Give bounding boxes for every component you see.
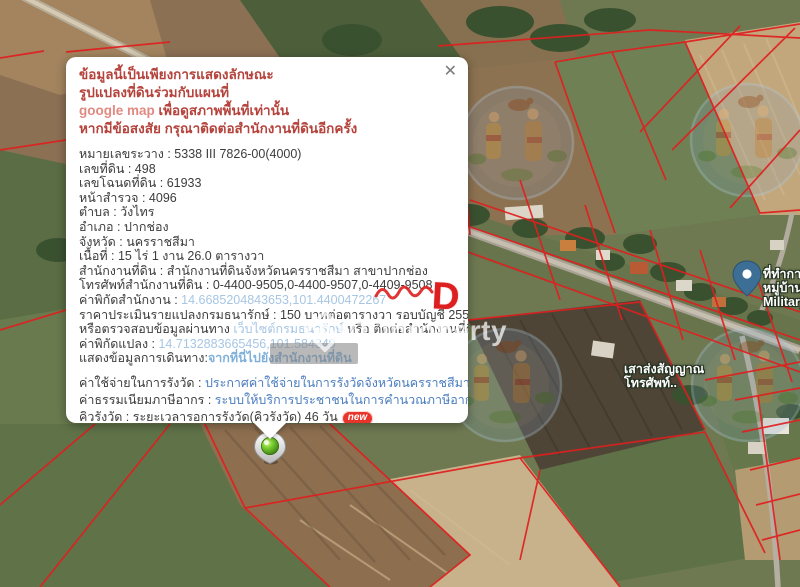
popup-block-gap: [79, 138, 456, 147]
popup-text: google map: [79, 103, 159, 118]
popup-text: ข้อมูลนี้เป็นเพียงการแสดงลักษณะ: [79, 67, 274, 82]
popup-link[interactable]: 14.6685204843653,101.4400472267: [181, 293, 386, 307]
popup-text: ค่าธรรมเนียมภาษีอากร :: [79, 393, 215, 407]
parcel-info-window: ✕ ข้อมูลนี้เป็นเพียงการแสดงลักษณะรูปแปลง…: [66, 57, 468, 423]
popup-text: อำเภอ : ปากช่อง: [79, 220, 169, 234]
parcel-info-content: ข้อมูลนี้เป็นเพียงการแสดงลักษณะรูปแปลงที…: [79, 66, 456, 423]
popup-link[interactable]: ระบบให้บริการประชาชนในการคำนวณภาษีอากร: [215, 393, 468, 407]
popup-text: เพื่อดูสภาพพื้นที่เท่านั้น: [159, 103, 290, 118]
popup-text: จังหวัด : นครราชสีมา: [79, 235, 195, 249]
popup-line: เนื้อที่ : 15 ไร่ 1 งาน 26.0 ตารางวา: [79, 249, 456, 264]
info-window-tail: [253, 422, 287, 439]
popup-line: เลขโฉนดที่ดิน : 61933: [79, 176, 456, 191]
popup-text: รูปแปลงที่ดินร่วมกับแผนที่: [79, 85, 229, 100]
popup-line: หรือตรวจสอบข้อมูลผ่านทาง เว็บไซต์กรมธนาร…: [79, 322, 456, 337]
popup-text: ค่าใช้จ่ายในการรังวัด :: [79, 376, 205, 390]
popup-line: จังหวัด : นครราชสีมา: [79, 235, 456, 250]
popup-link[interactable]: ประกาศค่าใช้จ่ายในการรังวัดจังหวัดนครราช…: [205, 376, 468, 390]
popup-block-details: หมายเลขระวาง : 5338 III 7826-00(4000)เลข…: [79, 147, 456, 366]
popup-block-actions: ค่าใช้จ่ายในการรังวัด : ประกาศค่าใช้จ่าย…: [79, 375, 456, 423]
gray-overlay-box: [270, 343, 358, 364]
new-badge: new: [342, 411, 373, 423]
military-village-office-label: ที่ทำการหมู่บ้านMilitary: [763, 267, 800, 309]
popup-text: เนื้อที่ : 15 ไร่ 1 งาน 26.0 ตารางวา: [79, 249, 264, 263]
popup-text: คิวรังวัด : ระยะเวลารอการรังวัด(คิวรังวั…: [79, 410, 338, 423]
popup-line: สำนักงานที่ดิน : สำนักงานที่ดินจังหวัดนค…: [79, 264, 456, 279]
popup-text: ค่าพิกัดแปลง :: [79, 337, 158, 351]
popup-line: รูปแปลงที่ดินร่วมกับแผนที่: [79, 84, 456, 102]
popup-line: หมายเลขระวาง : 5338 III 7826-00(4000): [79, 147, 456, 162]
popup-line: หน้าสำรวจ : 4096: [79, 191, 456, 206]
popup-text: หรือ ติดต่อสำนักงานที่ดิน: [344, 322, 468, 336]
popup-line: หากมีข้อสงสัย กรุณาติดต่อสำนักงานที่ดินอ…: [79, 120, 456, 138]
popup-text: โทรศัพท์สำนักงานที่ดิน : 0-4400-9505,0-4…: [79, 278, 432, 292]
popup-line: ค่าพิกัดสำนักงาน : 14.6685204843653,101.…: [79, 293, 456, 308]
popup-text: เลขโฉนดที่ดิน : 61933: [79, 176, 201, 190]
popup-line: google map เพื่อดูสภาพพื้นที่เท่านั้น: [79, 102, 456, 120]
popup-link[interactable]: เว็บไซต์กรมธนารักษ์: [233, 322, 343, 336]
popup-line: ค่าธรรมเนียมภาษีอากร : ระบบให้บริการประช…: [79, 392, 456, 409]
popup-line: คิวรังวัด : ระยะเวลารอการรังวัด(คิวรังวั…: [79, 409, 456, 423]
popup-block-warning: ข้อมูลนี้เป็นเพียงการแสดงลักษณะรูปแปลงที…: [79, 66, 456, 138]
popup-line: แสดงข้อมูลการเดินทาง:จากที่นี่ไปยังสำนัก…: [79, 351, 456, 366]
popup-line: ข้อมูลนี้เป็นเพียงการแสดงลักษณะ: [79, 66, 456, 84]
popup-text: ค่าพิกัดสำนักงาน :: [79, 293, 181, 307]
close-icon[interactable]: ✕: [444, 64, 457, 80]
telephone-tower-label: เสาส่งสัญญาณโทรศัพท์..: [624, 362, 704, 390]
map-viewer: ที่ทำการหมู่บ้านMilitaryเสาส่งสัญญาณโทรศ…: [0, 0, 800, 587]
popup-line: ราคาประเมินรายแปลงกรมธนารักษ์ : 150 บาทต…: [79, 308, 456, 323]
popup-text: สำนักงานที่ดิน : สำนักงานที่ดินจังหวัดนค…: [79, 264, 428, 278]
popup-text: ตำบล : วังไทร: [79, 205, 155, 219]
popup-line: ค่าพิกัดแปลง : 14.7132883665456,101.5843…: [79, 337, 456, 352]
popup-line: โทรศัพท์สำนักงานที่ดิน : 0-4400-9505,0-4…: [79, 278, 456, 293]
popup-text: เลขที่ดิน : 498: [79, 162, 156, 176]
popup-text: หมายเลขระวาง : 5338 III 7826-00(4000): [79, 147, 301, 161]
popup-text: หากมีข้อสงสัย กรุณาติดต่อสำนักงานที่ดินอ…: [79, 121, 357, 136]
popup-line: ตำบล : วังไทร: [79, 205, 456, 220]
popup-block-gap: [79, 366, 456, 375]
popup-text: ราคาประเมินรายแปลงกรมธนารักษ์ : 150 บาทต…: [79, 308, 468, 322]
popup-text: หน้าสำรวจ : 4096: [79, 191, 177, 205]
popup-text: แสดงข้อมูลการเดินทาง:: [79, 351, 208, 365]
popup-line: ค่าใช้จ่ายในการรังวัด : ประกาศค่าใช้จ่าย…: [79, 375, 456, 392]
popup-line: อำเภอ : ปากช่อง: [79, 220, 456, 235]
popup-line: เลขที่ดิน : 498: [79, 162, 456, 177]
popup-text: หรือตรวจสอบข้อมูลผ่านทาง: [79, 322, 233, 336]
